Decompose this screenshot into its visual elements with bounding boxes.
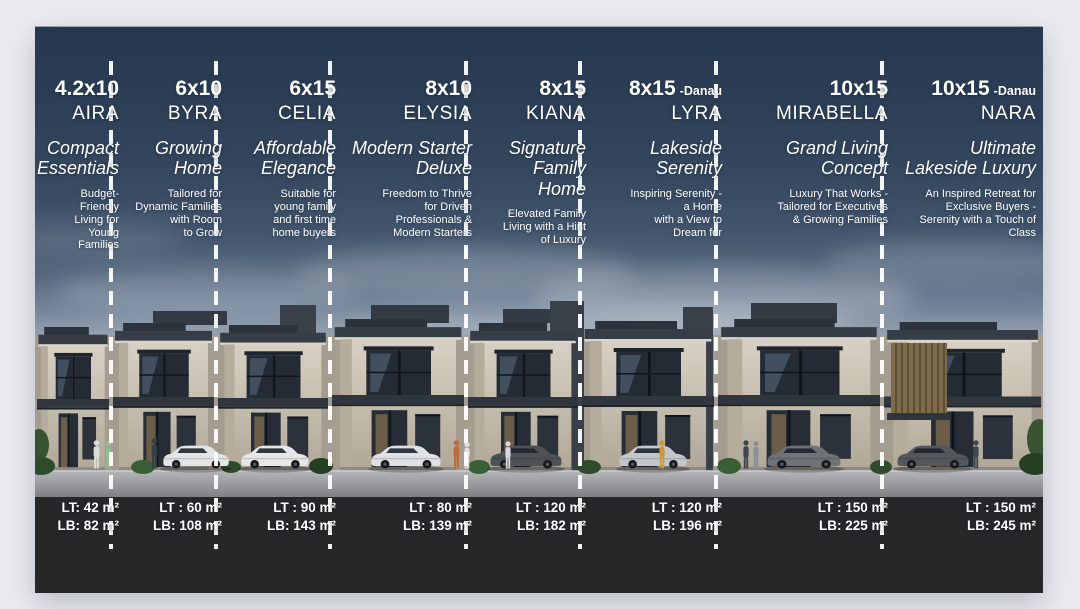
size-row: 8x15 -Danau [629, 77, 722, 100]
product-column-lyra: 8x15 -Danau LYRA Lakeside Serenity Inspi… [593, 27, 729, 593]
land-area: LT: 42 m² [58, 499, 120, 517]
product-tagline: Signature Family Home [481, 138, 586, 199]
area-specs: LT : 90 m² LB: 143 m² [267, 499, 336, 535]
product-tagline: Modern Starter Deluxe [352, 138, 472, 179]
size-label: 8x15 [539, 77, 586, 100]
size-suffix: -Danau [994, 84, 1036, 98]
product-description: Suitable for young family and first time… [272, 188, 336, 240]
product-tagline: Affordable Elegance [254, 138, 336, 179]
product-name: BYRA [168, 103, 222, 125]
area-specs: LT: 42 m² LB: 82 m² [58, 499, 120, 535]
building-area: LB: 225 m² [818, 517, 888, 535]
product-description: An Inspired Retreat for Exclusive Buyers… [919, 188, 1036, 240]
size-row: 6x15 [289, 77, 336, 100]
product-name: NARA [981, 103, 1036, 125]
product-name: MIRABELLA [776, 103, 888, 125]
area-specs: LT : 120 m² LB: 182 m² [516, 499, 586, 535]
building-area: LB: 196 m² [652, 517, 722, 535]
land-area: LT : 120 m² [652, 499, 722, 517]
product-description: Elevated Family Living with a Hint of Lu… [503, 208, 586, 247]
building-area: LB: 108 m² [153, 517, 222, 535]
size-row: 8x15 [539, 77, 586, 100]
land-area: LT : 150 m² [818, 499, 888, 517]
product-column-mirabella: 10x15 MIRABELLA Grand Living Concept Lux… [729, 27, 895, 593]
area-specs: LT : 150 m² LB: 245 m² [966, 499, 1036, 535]
product-tagline: Compact Essentials [37, 138, 119, 179]
size-row: 6x10 [175, 77, 222, 100]
size-suffix: -Danau [680, 84, 722, 98]
size-label: 6x15 [289, 77, 336, 100]
product-description: Budget- Friendly Living for Young Famili… [74, 188, 119, 253]
size-label: 10x15 [931, 77, 989, 100]
land-area: LT : 60 m² [153, 499, 222, 517]
building-area: LB: 245 m² [966, 517, 1036, 535]
product-column-aira: 4.2x10 AIRA Compact Essentials Budget- F… [35, 27, 124, 593]
product-column-celia: 6x15 CELIA Affordable Elegance Suitable … [229, 27, 343, 593]
area-specs: LT : 80 m² LB: 139 m² [403, 499, 472, 535]
product-description: Tailored for Dynamic Families with Room … [135, 188, 222, 240]
product-tagline: Grand Living Concept [786, 138, 888, 179]
land-area: LT : 120 m² [516, 499, 586, 517]
area-specs: LT : 150 m² LB: 225 m² [818, 499, 888, 535]
building-area: LB: 182 m² [516, 517, 586, 535]
area-specs: LT : 120 m² LB: 196 m² [652, 499, 722, 535]
product-column-nara: 10x15 -Danau NARA Ultimate Lakeside Luxu… [895, 27, 1056, 593]
land-area: LT : 80 m² [403, 499, 472, 517]
size-label: 10x15 [830, 77, 888, 100]
product-name: ELYSIA [403, 103, 472, 125]
size-row: 8x10 [425, 77, 472, 100]
product-name: LYRA [671, 103, 722, 125]
product-description: Freedom to Thrive for Driven Professiona… [382, 188, 472, 240]
product-description: Luxury That Works - Tailored for Executi… [777, 188, 888, 227]
size-label: 8x10 [425, 77, 472, 100]
building-area: LB: 143 m² [267, 517, 336, 535]
building-area: LB: 139 m² [403, 517, 472, 535]
size-label: 4.2x10 [55, 77, 119, 100]
building-area: LB: 82 m² [58, 517, 120, 535]
product-columns: 4.2x10 AIRA Compact Essentials Budget- F… [35, 27, 1043, 593]
product-column-kiana: 8x15 KIANA Signature Family Home Elevate… [479, 27, 593, 593]
land-area: LT : 150 m² [966, 499, 1036, 517]
size-label: 6x10 [175, 77, 222, 100]
product-column-elysia: 8x10 ELYSIA Modern Starter Deluxe Freedo… [343, 27, 479, 593]
size-row: 10x15 [830, 77, 888, 100]
area-specs: LT : 60 m² LB: 108 m² [153, 499, 222, 535]
product-tagline: Lakeside Serenity [650, 138, 722, 179]
land-area: LT : 90 m² [267, 499, 336, 517]
size-row: 10x15 -Danau [931, 77, 1036, 100]
product-name: AIRA [72, 103, 119, 125]
product-name: KIANA [526, 103, 586, 125]
product-name: CELIA [278, 103, 336, 125]
product-tagline: Growing Home [155, 138, 222, 179]
product-column-byra: 6x10 BYRA Growing Home Tailored for Dyna… [124, 27, 229, 593]
product-lineup-card: 4.2x10 AIRA Compact Essentials Budget- F… [35, 26, 1043, 593]
product-tagline: Ultimate Lakeside Luxury [905, 138, 1036, 179]
size-label: 8x15 [629, 77, 676, 100]
product-description: Inspiring Serenity - a Home with a View … [630, 188, 722, 240]
size-row: 4.2x10 [55, 77, 119, 100]
